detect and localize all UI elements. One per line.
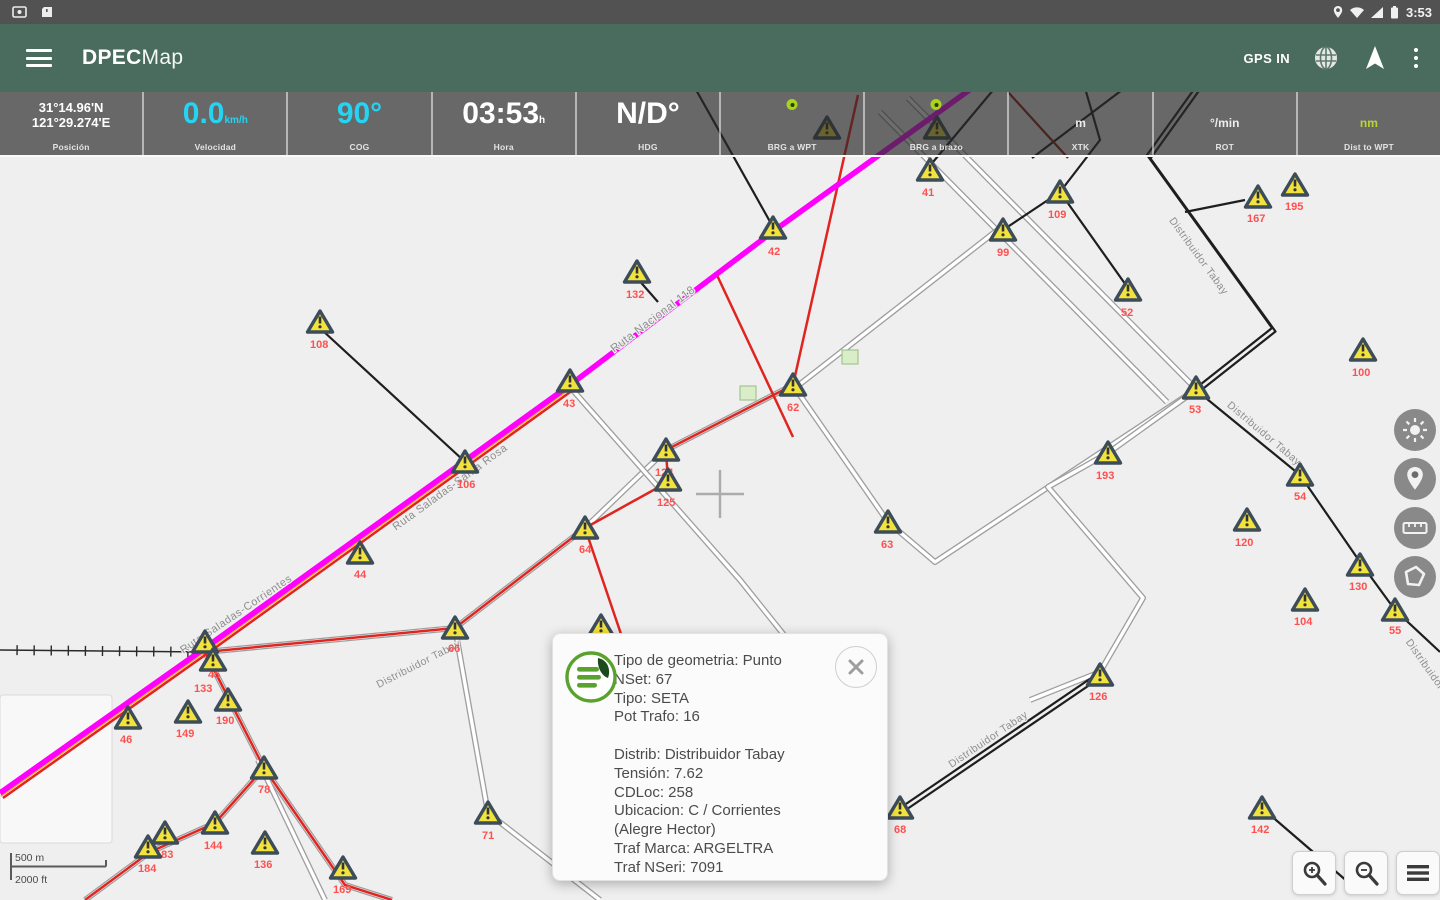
- close-icon: [846, 657, 866, 677]
- data-cell-cog[interactable]: 90°COG: [288, 92, 432, 155]
- notification-sdcard-icon: [41, 6, 54, 18]
- data-cell-hora[interactable]: 03:53hHora: [433, 92, 577, 155]
- notification-screenshot-icon: [12, 6, 27, 18]
- waypoint-number-label: 68: [894, 824, 906, 836]
- cell-value: 0.0km/h: [144, 98, 286, 137]
- globe-icon[interactable]: [1312, 44, 1340, 72]
- waypoint-number-label: 52: [1121, 307, 1133, 319]
- popup-close-button[interactable]: [835, 646, 877, 688]
- waypoint-number-label: 133: [194, 683, 212, 695]
- zoom-in-icon: [1300, 859, 1328, 887]
- waypoint-pin-button[interactable]: [1394, 458, 1436, 500]
- app-title-bold: DPEC: [82, 46, 142, 69]
- waypoint-number-label: 64: [579, 544, 592, 556]
- waypoint-number-label: 149: [176, 728, 194, 740]
- popup-line: Traf Marca: ARGELTRA: [614, 840, 841, 859]
- cell-signal-icon: [1370, 6, 1385, 19]
- status-clock: 3:53: [1406, 5, 1432, 20]
- zoom-in-button[interactable]: [1292, 851, 1336, 895]
- waypoint-number-label: 46: [120, 734, 132, 746]
- popup-line: Pot Trafo: 16: [614, 708, 841, 727]
- cell-label: BRG a brazo: [865, 142, 1007, 152]
- waypoint-number-label: 54: [1294, 491, 1307, 503]
- scale-imperial-label: 2000 ft: [15, 874, 47, 886]
- cell-value: 03:53h: [433, 98, 575, 137]
- waypoint-number-label: 78: [258, 784, 270, 796]
- data-cell-posici-n[interactable]: 31°14.96'N121°29.274'EPosición: [0, 92, 144, 155]
- popup-line: [614, 727, 841, 746]
- app-title: DPECMap: [82, 46, 183, 70]
- waypoint-number-label: 42: [768, 246, 780, 258]
- building-footprint: [740, 386, 756, 400]
- location-pin-icon: [1403, 466, 1427, 492]
- polygon-button[interactable]: [1394, 556, 1436, 598]
- waypoint-number-label: 184: [138, 863, 157, 875]
- cell-label: HDG: [577, 142, 719, 152]
- waypoint-number-label: 142: [1251, 824, 1269, 836]
- cell-label: XTK: [1009, 142, 1151, 152]
- popup-line: Tensión: 7.62: [614, 765, 841, 784]
- data-cell-brg-a-wpt[interactable]: BRG a WPT: [721, 92, 865, 155]
- overflow-menu-button[interactable]: [1410, 44, 1422, 72]
- ruler-icon: [1402, 519, 1428, 537]
- waypoint-number-label: 144: [204, 840, 223, 852]
- popup-line: Traf NSeri: 7091: [614, 859, 841, 878]
- cell-label: COG: [288, 142, 430, 152]
- waypoint-number-label: 55: [1389, 625, 1401, 637]
- scale-metric-label: 500 m: [15, 852, 44, 864]
- popup-line: CDLoc: 258: [614, 784, 841, 803]
- zoom-out-button[interactable]: [1344, 851, 1388, 895]
- waypoint-number-label: 104: [1294, 616, 1313, 628]
- my-location-button[interactable]: [1394, 409, 1436, 451]
- waypoint-number-label: 43: [563, 398, 575, 410]
- zoom-out-icon: [1352, 859, 1380, 887]
- cell-label: ROT: [1154, 142, 1296, 152]
- waypoint-number-label: 53: [1189, 404, 1201, 416]
- waypoint-number-label: 106: [457, 479, 475, 491]
- data-cell-xtk[interactable]: mXTK: [1009, 92, 1153, 155]
- waypoint-number-label: 44: [354, 569, 367, 581]
- waypoint-number-label: 66: [448, 643, 460, 655]
- popup-line: Tipo: SETA: [614, 690, 841, 709]
- popup-line: Distrib: Distribuidor Tabay: [614, 746, 841, 765]
- waypoint-number-label: 190: [216, 715, 234, 727]
- popup-line: NSet: 67: [614, 671, 841, 690]
- cell-label: Velocidad: [144, 142, 286, 152]
- bearing-dot-icon: [931, 99, 942, 110]
- data-cell-hdg[interactable]: N/D°HDG: [577, 92, 721, 155]
- scale-bar: 500 m 2000 ft: [8, 850, 118, 888]
- cell-value: 90°: [288, 98, 430, 130]
- nav-data-bar: 31°14.96'N121°29.274'EPosición0.0km/hVel…: [0, 92, 1440, 157]
- waypoint-number-label: 63: [881, 539, 893, 551]
- waypoint-number-label: 99: [997, 247, 1009, 259]
- cell-value: N/D°: [577, 98, 719, 130]
- dpec-logo: [564, 650, 618, 704]
- building-footprint: [842, 350, 858, 364]
- polygon-icon: [1401, 563, 1429, 591]
- cell-value: 31°14.96'N121°29.274'E: [0, 100, 142, 130]
- popup-line: (Alegre Hector): [614, 821, 841, 840]
- data-cell-rot[interactable]: °/minROT: [1154, 92, 1298, 155]
- waypoint-number-label: 108: [310, 339, 328, 351]
- battery-icon: [1390, 5, 1399, 19]
- gps-fix-icon: [1402, 417, 1428, 443]
- waypoint-number-label: 126: [1089, 691, 1107, 703]
- cell-value: m: [1009, 116, 1151, 130]
- waypoint-number-label: 71: [482, 830, 494, 842]
- waypoint-number-label: 169: [333, 884, 351, 896]
- navigation-arrow-icon[interactable]: [1362, 44, 1388, 72]
- cell-label: BRG a WPT: [721, 142, 863, 152]
- waypoint-number-label: 130: [1349, 581, 1367, 593]
- dpec-map-screen: Ruta Nacional 118Ruta Saladas-Santa Rosa…: [0, 0, 1440, 900]
- waypoint-number-label: 109: [1048, 209, 1066, 221]
- data-cell-brg-a-brazo[interactable]: BRG a brazo: [865, 92, 1009, 155]
- location-status-icon: [1332, 5, 1344, 19]
- waypoint-number-label: 193: [1096, 470, 1114, 482]
- app-title-light: Map: [142, 46, 184, 69]
- wifi-icon: [1349, 6, 1365, 19]
- waypoint-number-label: 41: [922, 187, 934, 199]
- popup-line: Tipo de geometria: Punto: [614, 652, 841, 671]
- popup-line: Ubicacion: C / Corrientes: [614, 802, 841, 821]
- cell-value: nm: [1298, 116, 1440, 130]
- info-popup: Tipo de geometria: PuntoNSet: 67Tipo: SE…: [552, 633, 888, 881]
- gps-status-label: GPS IN: [1244, 51, 1290, 66]
- app-bar: DPECMap GPS IN: [0, 24, 1440, 92]
- waypoint-number-label: 195: [1285, 201, 1303, 213]
- waypoint-number-label: 136: [254, 859, 272, 871]
- hamburger-menu-button[interactable]: [26, 49, 52, 67]
- waypoint-number-label: 125: [657, 497, 675, 509]
- waypoint-number-label: 62: [787, 402, 799, 414]
- ruler-button[interactable]: [1394, 507, 1436, 549]
- waypoint-number-label: 167: [1247, 213, 1265, 225]
- layers-button[interactable]: [1396, 851, 1440, 895]
- cell-label: Posición: [0, 142, 142, 152]
- waypoint-number-label: 100: [1352, 367, 1370, 379]
- cell-label: Dist to WPT: [1298, 142, 1440, 152]
- bearing-dot-icon: [787, 99, 798, 110]
- waypoint-number-label: 120: [1235, 537, 1253, 549]
- data-cell-velocidad[interactable]: 0.0km/hVelocidad: [144, 92, 288, 155]
- popup-text-block: Tipo de geometria: PuntoNSet: 67Tipo: SE…: [614, 652, 841, 878]
- waypoint-number-label: 132: [626, 289, 644, 301]
- layers-menu-icon: [1405, 863, 1431, 883]
- cell-label: Hora: [433, 142, 575, 152]
- android-status-bar: 3:53: [0, 0, 1440, 24]
- cell-value: °/min: [1154, 116, 1296, 130]
- data-cell-dist-to-wpt[interactable]: nmDist to WPT: [1298, 92, 1440, 155]
